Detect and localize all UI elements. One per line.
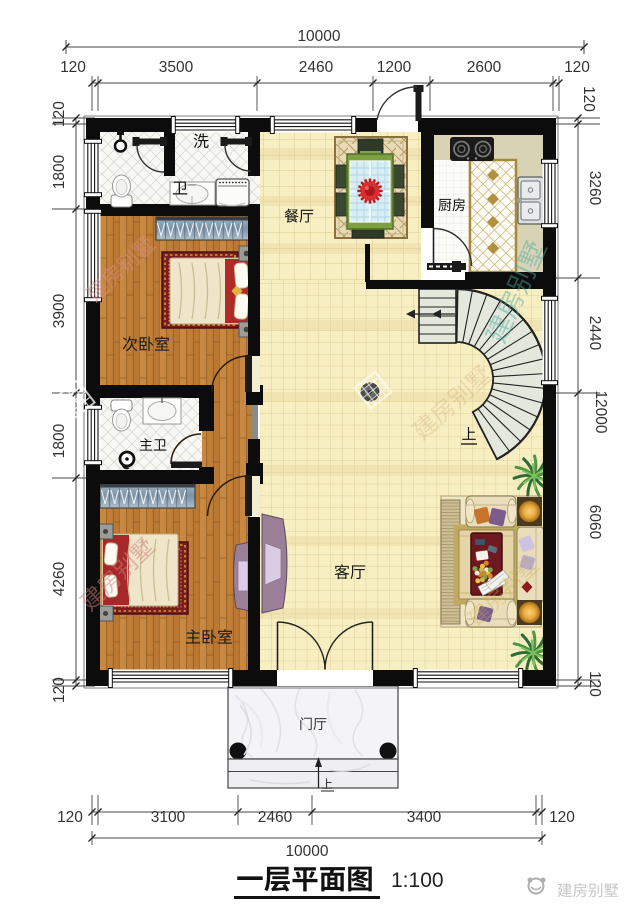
svg-text:2460: 2460	[299, 59, 334, 76]
svg-text:2600: 2600	[467, 59, 502, 76]
svg-text:2440: 2440	[586, 316, 603, 351]
svg-text:12000: 12000	[592, 390, 609, 433]
svg-text:1:100: 1:100	[391, 869, 444, 892]
svg-text:10000: 10000	[297, 28, 340, 45]
svg-text:120: 120	[580, 86, 597, 112]
svg-text:3900: 3900	[51, 293, 68, 328]
svg-text:120: 120	[51, 101, 68, 127]
svg-text:4260: 4260	[51, 561, 68, 596]
svg-text:1800: 1800	[51, 423, 68, 458]
svg-text:3400: 3400	[407, 809, 442, 826]
svg-text:120: 120	[57, 809, 83, 826]
svg-text:120: 120	[549, 809, 575, 826]
svg-text:3260: 3260	[586, 171, 603, 206]
svg-text:3500: 3500	[159, 59, 194, 76]
svg-text:3100: 3100	[151, 809, 186, 826]
svg-text:120: 120	[564, 59, 590, 76]
svg-text:1200: 1200	[377, 59, 412, 76]
svg-text:2460: 2460	[258, 809, 293, 826]
svg-text:120: 120	[586, 671, 603, 697]
svg-text:120: 120	[60, 59, 86, 76]
svg-text:1800: 1800	[51, 154, 68, 189]
svg-text:10000: 10000	[285, 843, 328, 860]
svg-text:120: 120	[51, 677, 68, 703]
svg-text:6060: 6060	[586, 505, 603, 540]
